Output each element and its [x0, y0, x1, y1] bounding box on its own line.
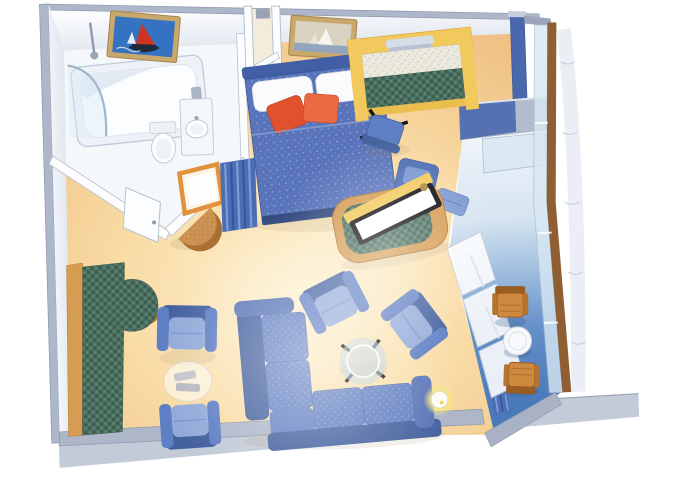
balcony-table — [503, 326, 532, 358]
floor-plan-figure: Cruise ship suite floor plan: bathroom w… — [0, 0, 680, 486]
wall-art-sailboat — [288, 15, 357, 60]
vanity-mirror — [179, 164, 223, 213]
right-wall-cap — [508, 10, 526, 18]
floor-plan-page: Cruise ship suite floor plan: bathroom w… — [0, 0, 680, 486]
right-wall — [510, 15, 527, 101]
balcony-chair-2 — [503, 362, 540, 394]
floor-plan — [36, 0, 641, 486]
orange-pillow-2 — [303, 93, 339, 123]
toilet — [150, 122, 177, 164]
wall-art-ship — [107, 11, 181, 63]
sink-vanity — [180, 98, 214, 155]
entry-door-frame — [256, 8, 270, 18]
balcony-chair-1 — [492, 286, 528, 317]
